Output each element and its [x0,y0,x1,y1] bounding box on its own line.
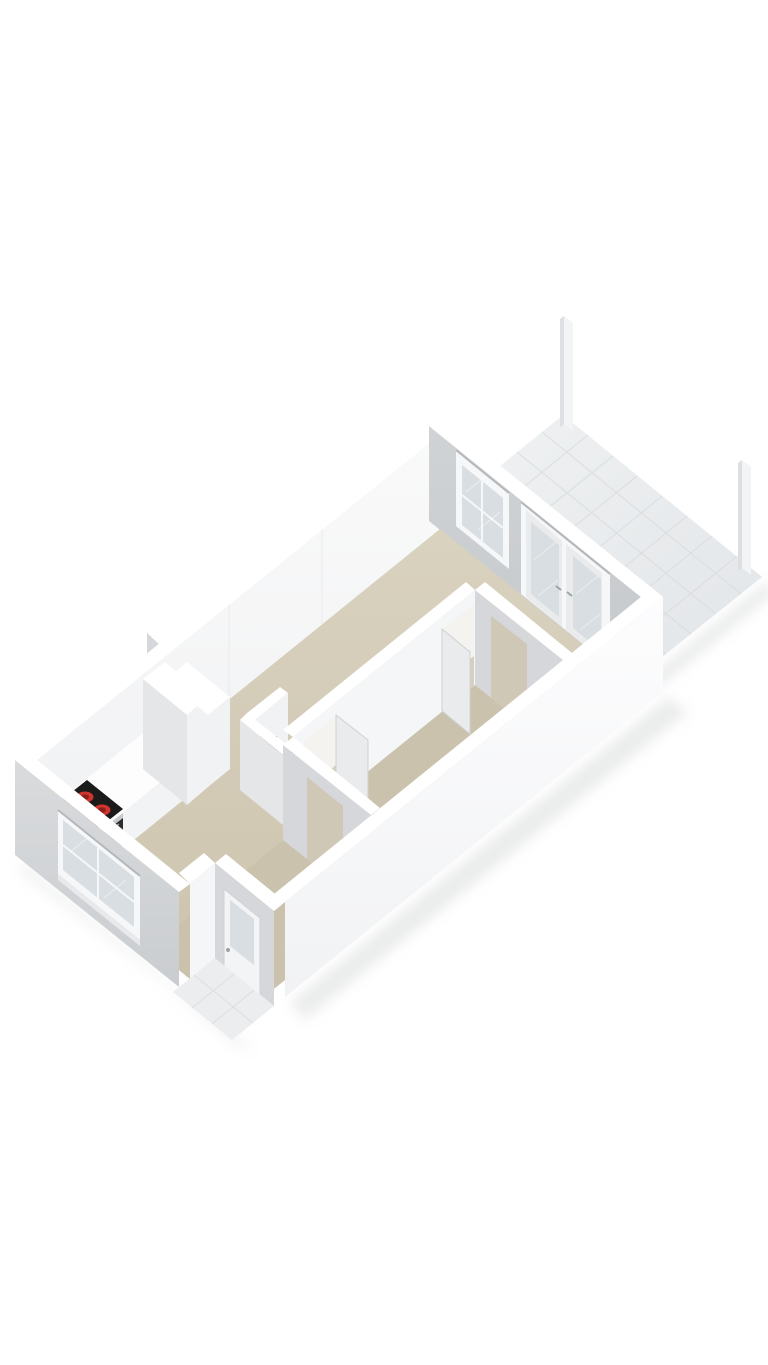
post-face [742,460,751,575]
cabinet-front [187,697,208,805]
post-face [564,316,573,431]
floor-plan-page [0,0,768,1365]
floor-plan-render [0,0,768,1365]
railing-post-north [560,316,573,431]
railing-post-east [738,460,751,575]
post-side-light [738,460,742,571]
post-side-light [560,316,564,427]
door-handle [226,948,230,952]
